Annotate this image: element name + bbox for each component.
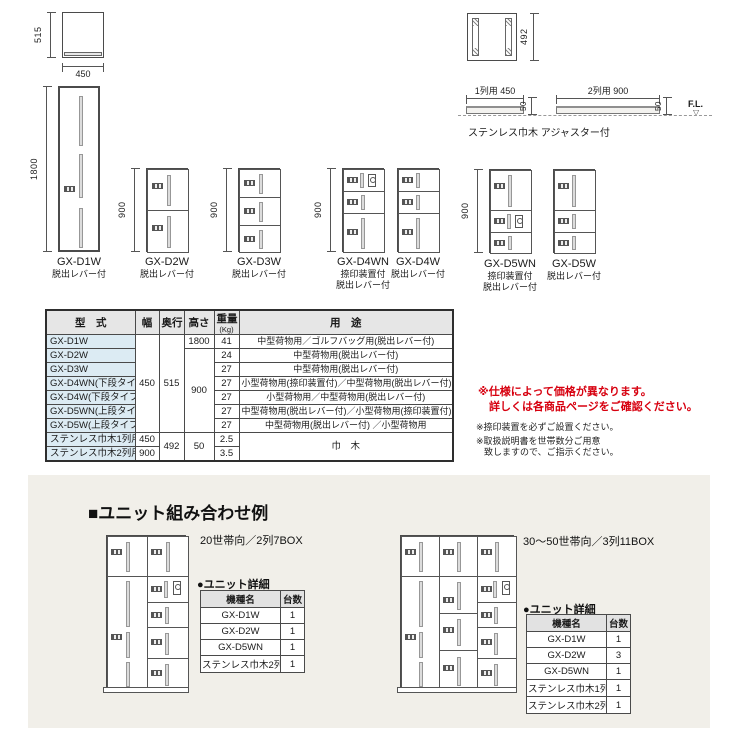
locker-model: GX-D5W — [532, 258, 616, 271]
combo-right-cabinet — [400, 535, 514, 688]
frame-left-rail — [472, 18, 479, 56]
weight-unit: (Kg) — [217, 325, 237, 334]
door-slit — [126, 632, 130, 658]
col-header-weight: 重量(Kg) — [214, 310, 239, 335]
door-handle-icon — [481, 586, 492, 592]
cell-use: 小型荷物用(捺印装置付)／中型荷物用(脱出レバー付) — [239, 377, 453, 391]
door-handle-icon — [402, 199, 413, 205]
door-slit — [457, 619, 461, 646]
door-slit — [361, 218, 365, 249]
door-slit — [165, 607, 169, 624]
stamp-device-icon — [173, 581, 181, 595]
table-row: GX-D1W1 — [201, 608, 305, 624]
detail-model: GX-D2W — [201, 624, 281, 640]
cell-use: 中型荷物用(脱出レバー付)／小型荷物用(捺印装置付) — [239, 405, 453, 419]
dim-line-515 — [50, 12, 51, 58]
cell-model: GX-D3W — [46, 363, 135, 377]
locker-door — [490, 170, 532, 211]
door-slit — [457, 657, 461, 686]
locker-door — [343, 169, 385, 192]
locker-feature: 脱出レバー付 — [376, 269, 460, 280]
door-handle-icon — [244, 208, 255, 214]
col-header-depth: 奥行 — [159, 310, 184, 335]
dim-label-900: 900 — [117, 168, 130, 252]
door-slit — [259, 202, 263, 222]
door-handle-icon — [402, 229, 413, 235]
detail-qty: 1 — [607, 680, 631, 697]
detail-qty: 1 — [607, 664, 631, 680]
locker-door — [147, 169, 189, 211]
table-row: ステンレス巾木1列用1 — [527, 680, 631, 697]
door-handle-icon — [347, 199, 358, 205]
door-slit — [126, 662, 130, 687]
door-handle-icon — [152, 225, 163, 231]
dim-label-492: 492 — [519, 13, 532, 61]
locker-door — [398, 169, 440, 192]
locker-door — [239, 169, 281, 198]
detail-col-model: 機種名 — [201, 591, 281, 608]
locker-model: GX-D2W — [125, 256, 209, 269]
table-row: GX-D5WN1 — [201, 640, 305, 656]
table-row: GX-D2W1 — [201, 624, 305, 640]
locker-door — [147, 210, 189, 253]
cell-weight: 27 — [214, 419, 239, 433]
dim-line-450 — [62, 66, 104, 67]
locker-door — [343, 213, 385, 253]
frame-right-rail — [505, 18, 512, 56]
detail-col-qty: 台数 — [281, 591, 305, 608]
door-handle-icon — [443, 597, 454, 603]
combo-left-title: 20世帯向／2列7BOX — [200, 532, 303, 548]
locker-door — [439, 650, 479, 690]
table-row: GX-D5WN(上段タイプ) 27 中型荷物用(脱出レバー付)／小型荷物用(捺印… — [46, 405, 453, 419]
locker-door — [398, 191, 440, 214]
locker-door — [439, 613, 479, 651]
door-slit — [572, 214, 576, 229]
dim-line-492 — [533, 13, 534, 61]
frame-hatch — [506, 19, 511, 26]
locker-door — [147, 627, 189, 659]
cell-height: 1800 — [184, 335, 214, 349]
section-title: ■ユニット組み合わせ例 — [88, 499, 268, 524]
door-slit — [126, 581, 130, 627]
locker-model: GX-D4W — [376, 256, 460, 269]
cell-use: 中型荷物用／ゴルフバッグ用(脱出レバー付) — [239, 335, 453, 349]
door-slit — [494, 633, 498, 655]
locker-door — [147, 658, 189, 690]
locker-caption: GX-D2W 脱出レバー付 — [125, 256, 209, 280]
dim-line-1800 — [46, 86, 47, 252]
col-header-use: 用 途 — [239, 310, 453, 335]
door-handle-icon — [405, 634, 416, 640]
table-row: GX-D4WN(下段タイプ) 27 小型荷物用(捺印装置付)／中型荷物用(脱出レ… — [46, 377, 453, 391]
locker-caption: GX-D4W 脱出レバー付 — [376, 256, 460, 280]
door-handle-icon — [64, 186, 75, 192]
door-handle-icon — [481, 549, 492, 555]
combo-right-title: 30～50世帯向／3列11BOX — [523, 533, 654, 549]
door-handle-icon — [443, 549, 454, 555]
frame-hatch — [473, 19, 478, 26]
col-header-width: 幅 — [135, 310, 159, 335]
door-slit — [126, 542, 130, 572]
locker-door — [401, 576, 440, 690]
cell-width-merged: 450 — [135, 335, 159, 433]
cell-use: 中型荷物用(脱出レバー付) — [239, 363, 453, 377]
door-handle-icon — [405, 549, 416, 555]
door-slit — [572, 175, 576, 207]
cell-model: GX-D4W(下段タイプ) — [46, 391, 135, 405]
locker-door — [477, 658, 517, 690]
detail-col-model: 機種名 — [527, 615, 607, 632]
door-handle-icon — [111, 549, 122, 555]
combo-left-base — [103, 687, 189, 693]
cell-weight: 2.5 — [214, 433, 239, 447]
cell-model: GX-D4WN(下段タイプ) — [46, 377, 135, 391]
locker-door — [477, 536, 517, 577]
locker-model: GX-D3W — [217, 256, 301, 269]
door-slit — [259, 230, 263, 249]
door-slit — [507, 214, 511, 229]
door-handle-icon — [494, 183, 505, 189]
locker-gx-d4wn — [342, 168, 384, 252]
locker-door — [401, 536, 440, 577]
locker-door — [490, 210, 532, 233]
spec-table: 型 式 幅 奥行 高さ 重量(Kg) 用 途 GX-D1W 450 515 18… — [45, 309, 454, 462]
cell-use: 中型荷物用(脱出レバー付) ／小型荷物用 — [239, 419, 453, 433]
door-slit — [493, 581, 497, 598]
door-slit — [165, 633, 169, 655]
door-slit — [508, 175, 512, 207]
cell-weight: 27 — [214, 377, 239, 391]
locker-feature: 脱出レバー付 — [125, 269, 209, 280]
detail-model: GX-D5WN — [201, 640, 281, 656]
locker-feature: 脱出レバー付 — [468, 282, 552, 293]
door-slit — [508, 236, 512, 250]
table-row: ステンレス巾木1列用 450 492 50 2.5 巾 木 — [46, 433, 453, 447]
door-slit — [419, 542, 423, 572]
profile1-dim-line — [466, 98, 524, 99]
door-handle-icon — [244, 180, 255, 186]
locker-caption: GX-D1W 脱出レバー付 — [37, 256, 121, 280]
door-handle-icon — [347, 177, 358, 183]
door-slit — [167, 216, 171, 248]
cell-weight: 27 — [214, 391, 239, 405]
locker-feature: 脱出レバー付 — [217, 269, 301, 280]
door-slit — [457, 582, 461, 610]
locker-door — [147, 602, 189, 628]
dim-label-900: 900 — [460, 169, 473, 253]
table-row: GX-D5W(上段タイプ) 27 中型荷物用(脱出レバー付) ／小型荷物用 — [46, 419, 453, 433]
door-handle-icon — [151, 549, 162, 555]
detail-header-row: 機種名 台数 — [527, 615, 631, 632]
locker-feature: 脱出レバー付 — [37, 269, 121, 280]
stamp-dot — [517, 218, 523, 224]
door-handle-icon — [347, 229, 358, 235]
stamp-dot — [370, 177, 376, 183]
stamp-device-icon — [502, 581, 510, 595]
door-handle-icon — [152, 183, 163, 189]
door-slit — [360, 173, 364, 188]
door-slit — [419, 632, 423, 658]
weight-label: 重量 — [217, 313, 238, 325]
door-slit — [164, 581, 168, 598]
locker-feature: 脱出レバー付 — [532, 271, 616, 282]
door-handle-icon — [494, 240, 505, 246]
dim-line-900 — [330, 168, 331, 252]
cell-model: ステンレス巾木1列用 — [46, 433, 135, 447]
cell-model: ステンレス巾木2列用 — [46, 447, 135, 461]
detail-model: ステンレス巾木2列用 — [527, 697, 607, 714]
locker-door — [477, 576, 517, 603]
cell-use-merged: 巾 木 — [239, 433, 453, 461]
stamp-dot — [175, 584, 181, 590]
detail-qty: 3 — [607, 648, 631, 664]
locker-gx-d3w — [238, 168, 280, 252]
profile2-bar — [556, 106, 660, 114]
locker-model: GX-D1W — [37, 256, 121, 269]
floor-line — [458, 115, 712, 116]
locker-door — [477, 627, 517, 659]
combo-left-cabinet — [106, 535, 186, 688]
locker-door — [439, 536, 479, 577]
detail-model: GX-D1W — [527, 632, 607, 648]
door-slit — [416, 218, 420, 249]
cell-height-merged: 900 — [184, 349, 214, 433]
door-slit — [259, 174, 263, 194]
locker-gx-d5w — [553, 169, 595, 253]
note-manual-line2: 致しますので、ご指示ください。 — [484, 445, 619, 458]
locker-door — [147, 536, 189, 577]
locker-door — [343, 191, 385, 214]
detail-col-qty: 台数 — [607, 615, 631, 632]
door-slit — [419, 662, 423, 687]
profile1-height-label: 50 — [519, 97, 532, 115]
top-view-drawing — [62, 12, 104, 58]
combo-right-base — [397, 687, 517, 693]
table-row: GX-D5WN1 — [527, 664, 631, 680]
detail-qty: 1 — [281, 608, 305, 624]
dim-label-515: 515 — [33, 12, 46, 58]
cell-model: GX-D5W(上段タイプ) — [46, 419, 135, 433]
door-slit — [416, 195, 420, 210]
door-handle-icon — [151, 670, 162, 676]
door-handle-icon — [494, 218, 505, 224]
door-slit — [495, 542, 499, 572]
cell-use: 中型荷物用(脱出レバー付) — [239, 349, 453, 363]
table-row: GX-D3W 27 中型荷物用(脱出レバー付) — [46, 363, 453, 377]
door-slit — [494, 664, 498, 686]
dim-line-900 — [226, 168, 227, 252]
cell-model: GX-D2W — [46, 349, 135, 363]
detail-header-row: 機種名 台数 — [201, 591, 305, 608]
detail-qty: 1 — [281, 640, 305, 656]
table-row: GX-D2W3 — [527, 648, 631, 664]
profile2-label: 2列用 900 — [556, 84, 660, 97]
door-handle-icon — [402, 177, 413, 183]
stamp-dot — [504, 584, 510, 590]
door-handle-icon — [481, 670, 492, 676]
cell-width: 450 — [135, 433, 159, 447]
detail-qty: 1 — [607, 632, 631, 648]
profile1-label: 1列用 450 — [462, 84, 528, 97]
cell-weight: 41 — [214, 335, 239, 349]
locker-door — [239, 225, 281, 253]
price-note-line2: 詳しくは各商品ページをご確認ください。 — [489, 398, 698, 414]
detail-qty: 1 — [281, 656, 305, 673]
cell-depth-merged: 492 — [159, 433, 184, 461]
locker-door — [554, 210, 596, 233]
cell-use: 小型荷物用／中型荷物用(脱出レバー付) — [239, 391, 453, 405]
locker-feature: 脱出レバー付 — [321, 280, 405, 291]
catalog-page: 515 450 492 1列用 450 50 2列用 900 50 F.L. ▽… — [0, 0, 740, 740]
locker-gx-d1w — [58, 86, 100, 252]
locker-door — [107, 536, 148, 577]
door-slit — [79, 96, 83, 146]
dim-line-900 — [477, 169, 478, 253]
door-slit — [167, 175, 171, 206]
door-slit — [457, 542, 461, 572]
door-handle-icon — [558, 240, 569, 246]
stamp-device-icon — [515, 215, 523, 228]
profiles-caption: ステンレス巾木 アジャスター付 — [468, 124, 610, 139]
locker-door — [439, 576, 479, 614]
table-row: GX-D2W 900 24 中型荷物用(脱出レバー付) — [46, 349, 453, 363]
door-handle-icon — [151, 639, 162, 645]
table-row: ステンレス巾木2列用1 — [527, 697, 631, 714]
detail-model: GX-D1W — [201, 608, 281, 624]
door-handle-icon — [481, 639, 492, 645]
cell-weight: 27 — [214, 405, 239, 419]
door-handle-icon — [558, 183, 569, 189]
door-slit — [166, 542, 170, 572]
detail-model: GX-D2W — [527, 648, 607, 664]
stamp-device-icon — [368, 174, 376, 187]
profile1-bar — [466, 106, 524, 114]
door-handle-icon — [244, 236, 255, 242]
locker-door — [107, 576, 148, 690]
table-row: GX-D1W 450 515 1800 41 中型荷物用／ゴルフバッグ用(脱出レ… — [46, 335, 453, 349]
door-handle-icon — [443, 665, 454, 671]
door-slit — [419, 581, 423, 627]
dim-label-900: 900 — [209, 168, 222, 252]
table-row: GX-D1W1 — [527, 632, 631, 648]
locker-door — [239, 197, 281, 226]
combo-right-detail-table: 機種名 台数 GX-D1W1 GX-D2W3 GX-D5WN1 ステンレス巾木1… — [526, 614, 631, 714]
dim-label-1800: 1800 — [29, 86, 42, 252]
cell-height-merged: 50 — [184, 433, 214, 461]
dim-label-900: 900 — [313, 168, 326, 252]
profile2-dim-line — [556, 98, 660, 99]
locker-caption: GX-D5W 脱出レバー付 — [532, 258, 616, 282]
cell-model: GX-D1W — [46, 335, 135, 349]
locker-door — [477, 602, 517, 628]
door-slit — [572, 236, 576, 250]
spec-header-row: 型 式 幅 奥行 高さ 重量(Kg) 用 途 — [46, 310, 453, 335]
profile2-height-label: 50 — [654, 97, 667, 115]
door-handle-icon — [443, 627, 454, 633]
dim-label-450: 450 — [62, 69, 104, 79]
price-note-line1: ※仕様によって価格が異なります。 — [478, 383, 652, 399]
door-slit — [165, 664, 169, 686]
dim-line-900 — [134, 168, 135, 252]
base-frame-drawing — [467, 13, 517, 61]
col-header-model: 型 式 — [46, 310, 135, 335]
door-slit — [494, 607, 498, 624]
door-slit — [416, 173, 420, 188]
detail-qty: 1 — [281, 624, 305, 640]
cell-weight: 3.5 — [214, 447, 239, 461]
cell-width: 900 — [135, 447, 159, 461]
detail-qty: 1 — [607, 697, 631, 714]
door-handle-icon — [111, 634, 122, 640]
door-handle-icon — [558, 218, 569, 224]
cell-model: GX-D5WN(上段タイプ) — [46, 405, 135, 419]
locker-gx-d2w — [146, 168, 188, 252]
table-row: GX-D4W(下段タイプ) 27 小型荷物用／中型荷物用(脱出レバー付) — [46, 391, 453, 405]
locker-door — [554, 232, 596, 254]
combo-left-detail-table: 機種名 台数 GX-D1W1 GX-D2W1 GX-D5WN1 ステンレス巾木2… — [200, 590, 305, 673]
locker-door — [554, 170, 596, 211]
frame-hatch — [473, 48, 478, 55]
locker-gx-d4w — [397, 168, 439, 252]
locker-door — [490, 232, 532, 254]
door-slit — [79, 154, 83, 198]
frame-hatch — [506, 48, 511, 55]
locker-gx-d5wn — [489, 169, 531, 253]
top-view-door-edge — [64, 52, 102, 56]
col-header-height: 高さ — [184, 310, 214, 335]
door-slit — [79, 208, 83, 248]
locker-caption: GX-D3W 脱出レバー付 — [217, 256, 301, 280]
detail-model: ステンレス巾木1列用 — [527, 680, 607, 697]
cell-depth-merged: 515 — [159, 335, 184, 433]
cell-weight: 24 — [214, 349, 239, 363]
locker-door — [147, 576, 189, 603]
detail-model: ステンレス巾木2列用 — [201, 656, 281, 673]
locker-door — [398, 213, 440, 253]
door-handle-icon — [151, 612, 162, 618]
cell-weight: 27 — [214, 363, 239, 377]
detail-model: GX-D5WN — [527, 664, 607, 680]
door-handle-icon — [481, 612, 492, 618]
door-slit — [361, 195, 365, 210]
door-handle-icon — [151, 586, 162, 592]
table-row: ステンレス巾木2列用1 — [201, 656, 305, 673]
note-stamp-device: ※捺印装置を必ずご設置ください。 — [476, 420, 619, 433]
